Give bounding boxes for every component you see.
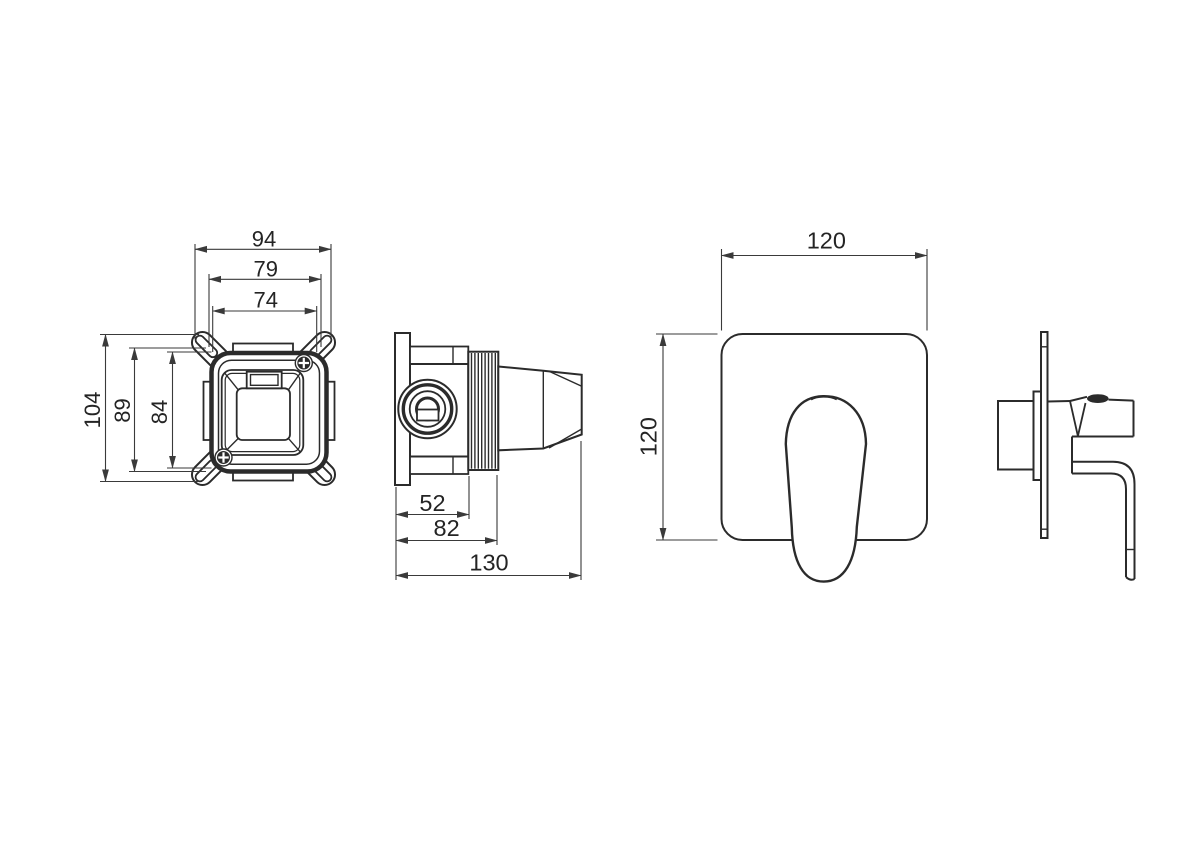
technical-drawing-page: 94 79 74 104 89 84 52 xyxy=(0,0,1200,849)
sleeve-collar xyxy=(1034,392,1042,481)
clip-inner xyxy=(251,375,279,386)
funnel-opening xyxy=(222,370,304,455)
trim-plate-side-view xyxy=(998,332,1135,580)
dim-valve-height-inner: 84 xyxy=(147,352,212,468)
handle-hub xyxy=(1048,394,1134,436)
dim-label-120-width: 120 xyxy=(807,228,846,254)
lever-end-cap xyxy=(1126,577,1135,580)
dim-label-74: 74 xyxy=(254,288,278,313)
dim-label-120-height: 120 xyxy=(636,417,662,456)
dim-valve-depth-thread: 82 xyxy=(396,475,497,545)
screw-bottom-left xyxy=(215,449,232,466)
lever-side-profile xyxy=(1072,437,1135,580)
trim-plate-front-view xyxy=(722,334,928,582)
dim-label-94: 94 xyxy=(252,227,276,252)
port-keyway xyxy=(417,410,439,421)
lever-handle xyxy=(786,396,866,581)
dim-label-130: 130 xyxy=(469,550,508,576)
dim-label-89: 89 xyxy=(110,398,135,422)
hub-face-edge xyxy=(1078,403,1086,437)
technical-drawing-canvas: 94 79 74 104 89 84 52 xyxy=(0,0,1200,849)
funnel-inner xyxy=(237,388,290,440)
lever-tip-side xyxy=(1087,394,1109,403)
plate-edge xyxy=(1041,332,1048,538)
dim-label-104: 104 xyxy=(80,392,105,429)
dim-valve-width-outer: 94 xyxy=(195,227,331,340)
inlet-port xyxy=(398,380,456,438)
valve-sleeve xyxy=(998,401,1034,470)
lug-top xyxy=(410,347,468,365)
hub-neck-edge xyxy=(1070,401,1078,437)
dim-label-84: 84 xyxy=(147,400,172,424)
dim-label-82: 82 xyxy=(434,515,460,541)
dim-plate-width: 120 xyxy=(722,228,928,331)
screw-top-right xyxy=(295,355,312,372)
threaded-section xyxy=(468,352,498,470)
dim-label-79: 79 xyxy=(254,257,278,282)
lug-bottom xyxy=(410,457,468,475)
dim-valve-height-outer: 104 xyxy=(80,335,199,482)
dim-valve-width-inner: 74 xyxy=(213,288,317,353)
dim-label-52: 52 xyxy=(419,490,445,516)
protection-cap xyxy=(498,367,581,451)
rough-in-valve-side-view xyxy=(395,333,582,485)
dim-plate-height: 120 xyxy=(636,334,718,540)
